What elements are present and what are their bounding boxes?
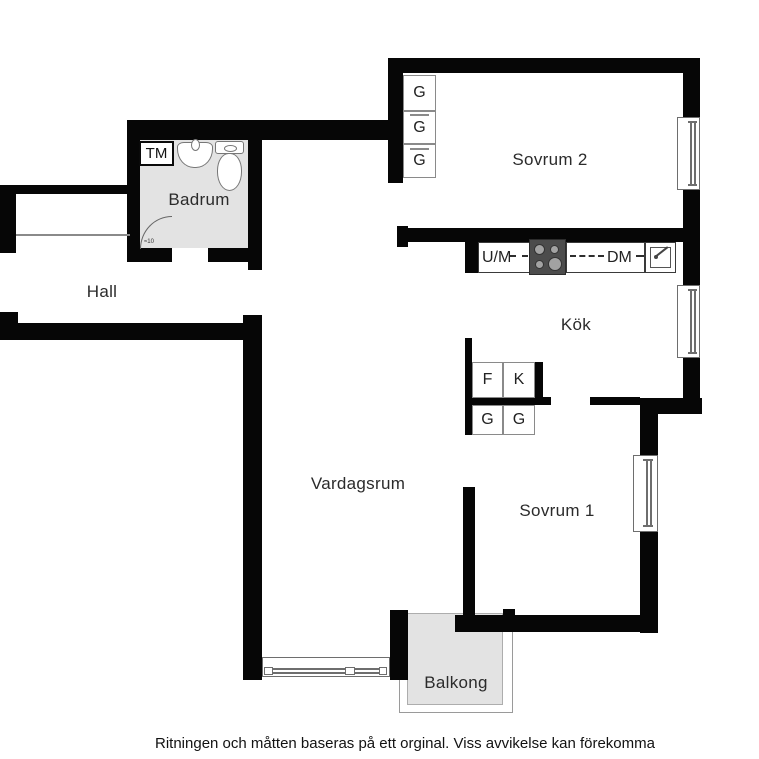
kitchen-window <box>677 285 700 358</box>
room-label-sovrum2: Sovrum 2 <box>512 150 587 170</box>
counter-dash-1 <box>510 255 528 257</box>
wall-hall-north <box>12 185 135 194</box>
entry-door-line <box>16 234 130 236</box>
floor-plan: U/M DM G G G F K G G TM <box>0 0 759 759</box>
cabinet-label: G <box>513 411 525 429</box>
sink-spout-icon <box>191 139 200 151</box>
vardagsrum-window <box>262 657 390 677</box>
wall-sovrum1-east-upper <box>640 414 658 456</box>
closet-shelf-mark <box>410 148 429 150</box>
wall-entry-west <box>0 185 16 253</box>
kitchen-sink <box>645 242 676 273</box>
wall-east-lower <box>683 357 700 402</box>
counter-dash-2 <box>570 255 604 257</box>
cabinet-k: K <box>503 362 535 398</box>
badrum-door-note: ≈10 <box>144 239 154 245</box>
wall-hall-west-stub <box>0 312 18 340</box>
wall-hall-south <box>18 323 258 340</box>
cabinet-g2: G <box>503 405 535 435</box>
cabinet-label: G <box>481 411 493 429</box>
closet-shelf-mark <box>410 114 429 116</box>
wall-sovrum2-north <box>388 58 700 73</box>
cabinet-label: K <box>514 371 525 389</box>
closet-label: G <box>413 119 425 137</box>
dishwasher-label: DM <box>607 249 632 267</box>
sovrum2-window <box>677 117 700 190</box>
room-label-badrum: Badrum <box>168 190 229 210</box>
stove-icon <box>529 239 566 275</box>
cabinet-f: F <box>472 362 503 398</box>
wall-east-mid <box>683 190 700 285</box>
closet-sovrum2-1: G <box>403 75 436 111</box>
cabinet-label: F <box>483 371 493 389</box>
room-label-kok: Kök <box>561 315 591 335</box>
closet-label: G <box>413 84 425 102</box>
wall-sovrum1-south <box>455 615 657 632</box>
sovrum1-window <box>633 455 658 532</box>
washing-machine-label: TM <box>146 145 168 162</box>
faucet-base-icon <box>654 255 658 259</box>
wall-sovrum1-south-stub <box>503 609 515 616</box>
room-label-sovrum1: Sovrum 1 <box>519 501 594 521</box>
wall-east-upper <box>683 58 700 117</box>
oven-microwave-label: U/M <box>482 249 511 267</box>
wall-sovrum1-west <box>463 487 475 627</box>
wall-passage-north <box>127 120 403 140</box>
room-label-hall: Hall <box>87 282 118 302</box>
wall-cabinet-west <box>465 338 472 435</box>
room-label-vardagsrum: Vardagsrum <box>311 474 405 494</box>
closet-label: G <box>413 152 425 170</box>
wall-vardagsrum-west <box>243 315 262 680</box>
wall-jog <box>640 398 702 414</box>
plan-caption: Ritningen och måtten baseras på ett orgi… <box>50 735 759 752</box>
cabinet-g1: G <box>472 405 503 435</box>
toilet-bowl-icon <box>217 153 242 191</box>
wall-counter-stub <box>465 242 478 273</box>
wall-badrum-south-right <box>208 248 262 262</box>
wall-cabinet-east <box>535 362 543 403</box>
counter-dash-3 <box>636 255 644 257</box>
room-label-balkong: Balkong <box>424 673 488 693</box>
wall-balcony-west-stub <box>390 610 408 680</box>
dishwasher-unit: DM <box>566 242 645 273</box>
wall-badrum-south-left <box>127 248 172 262</box>
washing-machine: TM <box>139 141 174 166</box>
wall-kitchen-south-b <box>590 397 640 405</box>
oven-microwave-unit: U/M <box>478 242 530 273</box>
